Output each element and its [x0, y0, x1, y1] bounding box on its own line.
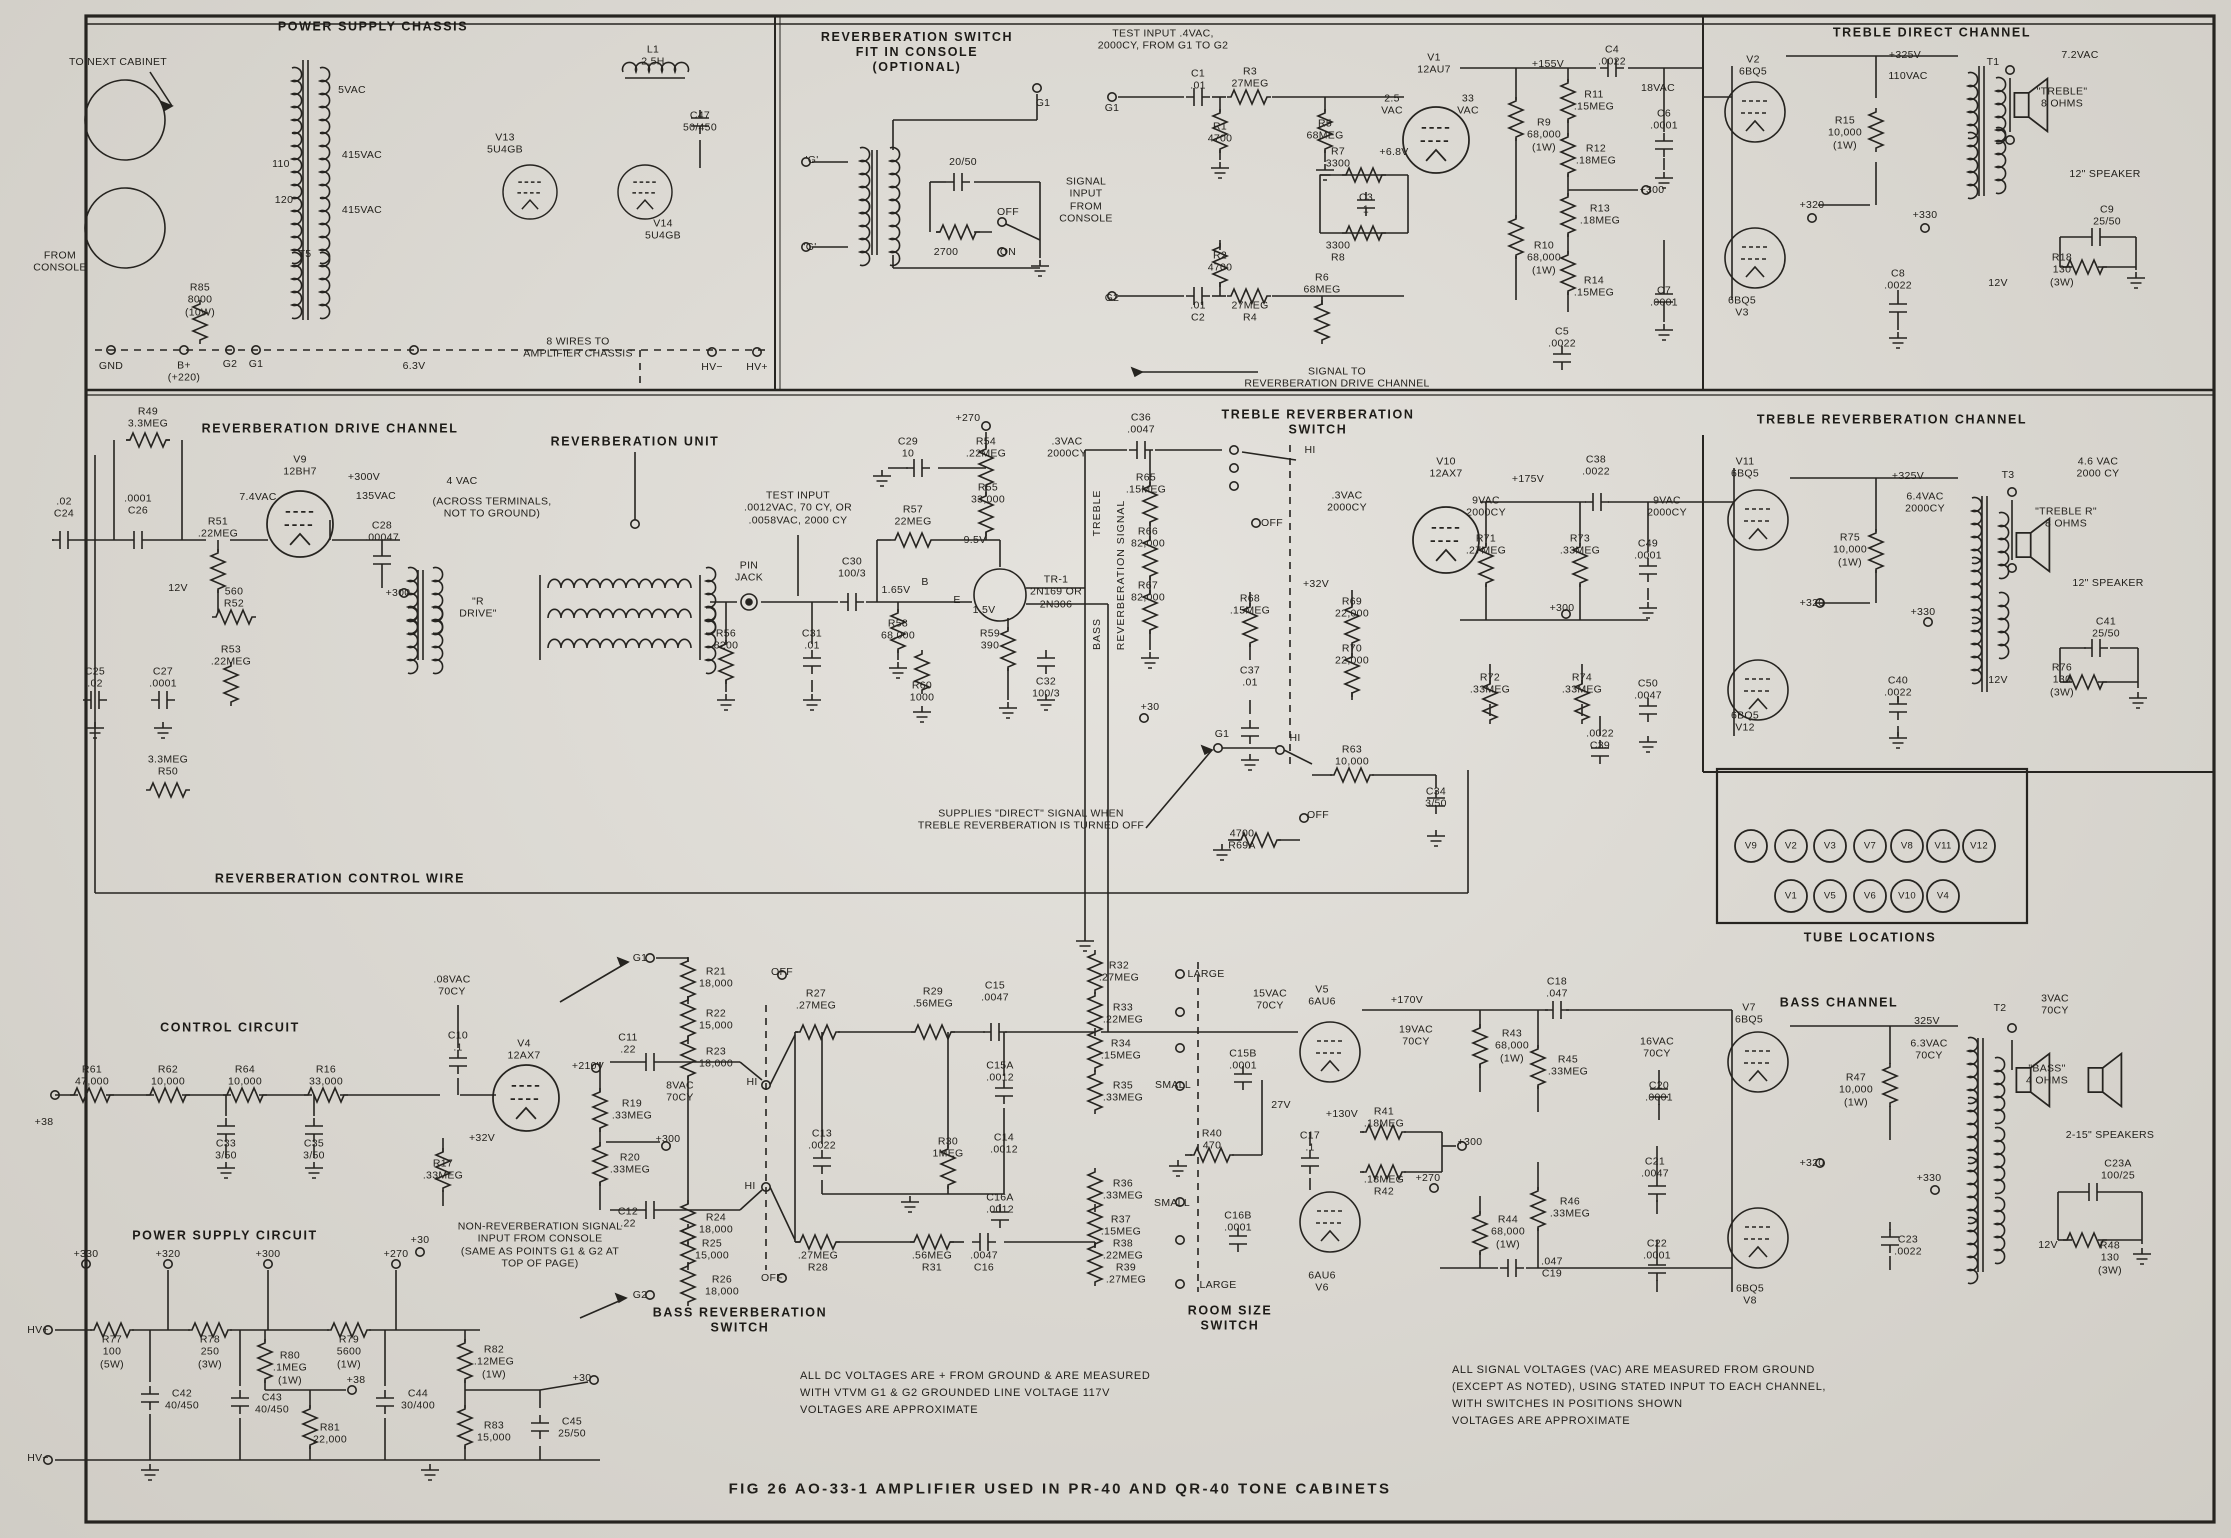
schematic-label: +300 — [256, 1248, 281, 1260]
schematic-label: C47 50/450 — [683, 110, 717, 135]
schematic-label: C3 1 — [1359, 192, 1373, 217]
schematic-label: C27 .0001 — [149, 666, 177, 691]
schematic-label: +30 — [1141, 701, 1160, 713]
schematic-label: R9 68,000 (1W) — [1527, 116, 1561, 153]
schematic-label: +300V — [348, 471, 380, 483]
schematic-label: FROM CONSOLE — [33, 250, 86, 275]
schematic-label: +155V — [1532, 58, 1564, 70]
schematic-label: R3 27MEG — [1231, 66, 1268, 91]
schematic-label: R63 10,000 — [1335, 744, 1369, 769]
schematic-label: 18VAC — [1641, 82, 1675, 94]
schematic-label: V14 5U4GB — [645, 218, 681, 243]
schematic-label: +175V — [1512, 473, 1544, 485]
schematic-label: R39 .27MEG — [1106, 1262, 1146, 1287]
schematic-label: +300 — [656, 1133, 681, 1145]
schematic-label: OFF — [761, 1272, 783, 1284]
schematic-label: B — [921, 576, 928, 588]
schematic-label: C43 40/450 — [255, 1392, 289, 1417]
schematic-label: R85 8000 (10W) — [185, 281, 215, 318]
schematic-label: R29 .56MEG — [913, 986, 953, 1011]
schematic-label: "BASS" 4 OHMS — [2026, 1063, 2068, 1088]
tube-location-label: V9 — [1745, 840, 1757, 851]
schematic-label: BASS CHANNEL — [1780, 996, 1899, 1011]
schematic-label: .01 C2 — [1190, 300, 1206, 325]
schematic-label: HI — [746, 1076, 757, 1088]
schematic-label: R60 1000 — [910, 680, 935, 705]
schematic-label: R68 .15MEG — [1230, 593, 1270, 618]
schematic-label: 8VAC 70CY — [666, 1080, 694, 1105]
schematic-label: R13 .18MEG — [1580, 203, 1620, 228]
schematic-label: R1 4700 — [1208, 121, 1233, 146]
schematic-label: C6 .0001 — [1650, 108, 1678, 133]
schematic-label: C16B .0001 — [1224, 1210, 1252, 1235]
schematic-label: LARGE — [1199, 1279, 1236, 1291]
schematic-label: R12 .18MEG — [1576, 143, 1616, 168]
schematic-label: HI — [744, 1180, 755, 1192]
schematic-label: R45 .33MEG — [1548, 1054, 1588, 1079]
schematic-label: V9 12BH7 — [283, 454, 317, 479]
schematic-label: SMALL — [1154, 1197, 1190, 1209]
schematic-label: 16VAC 70CY — [1640, 1036, 1674, 1061]
schematic-label: R77 100 (5W) — [100, 1333, 124, 1370]
schematic-label: +300 — [1550, 602, 1575, 614]
tube-location-label: V3 — [1824, 840, 1836, 851]
schematic-label: 415VAC — [342, 204, 382, 216]
schematic-label: +38 — [347, 1374, 366, 1386]
schematic-label: C13 .0022 — [808, 1128, 836, 1153]
schematic-label: C28 .00047 — [365, 520, 399, 545]
schematic-label: .0022 C39 — [1586, 728, 1614, 753]
schematic-label: 110 — [272, 158, 290, 170]
schematic-label: 110VAC — [1888, 70, 1927, 82]
schematic-label: +330 — [74, 1248, 99, 1260]
schematic-label: TO NEXT CABINET — [69, 56, 167, 68]
schematic-label: C8 .0022 — [1884, 268, 1912, 293]
schematic-label: 6.3V — [403, 360, 426, 372]
schematic-label: POWER SUPPLY CHASSIS — [278, 20, 468, 35]
schematic-label: HV+ — [746, 361, 768, 373]
schematic-label: ON — [1000, 246, 1016, 258]
schematic-label: 325V — [1914, 1015, 1940, 1027]
schematic-label: R51 .22MEG — [198, 516, 238, 541]
schematic-label: R48 130 (3W) — [2098, 1239, 2122, 1276]
schematic-label: C31 .01 — [802, 628, 822, 653]
schematic-label: R79 5600 (1W) — [337, 1333, 362, 1370]
schematic-label: G1 — [1105, 102, 1120, 114]
schematic-label: R34 .15MEG — [1101, 1038, 1141, 1063]
schematic-label: R59 390 — [980, 628, 1000, 653]
schematic-label: +320 — [1800, 597, 1825, 609]
schematic-label: +32V — [469, 1132, 495, 1144]
schematic-label: "TREBLE" 8 OHMS — [2037, 86, 2088, 111]
schematic-label: TREBLE — [1091, 490, 1103, 537]
schematic-label: 12V — [168, 582, 188, 594]
schematic-label: HV− — [701, 361, 723, 373]
tube-location-label: V5 — [1824, 890, 1836, 901]
schematic-label: 6BQ5 V3 — [1728, 295, 1756, 320]
schematic-label: 7.4VAC — [239, 491, 276, 503]
schematic-label: C5 .0022 — [1548, 326, 1576, 351]
schematic-label: C15 .0047 — [981, 980, 1009, 1005]
schematic-label: R7 3300 — [1326, 146, 1351, 171]
schematic-label: 12V — [2038, 1239, 2058, 1251]
schematic-label: G1 — [249, 358, 264, 370]
schematic-label: 33 VAC — [1457, 93, 1479, 118]
note-dc-voltages: ALL DC VOLTAGES ARE + FROM GROUND & ARE … — [800, 1368, 1150, 1419]
schematic-label: 'G' — [803, 241, 816, 253]
schematic-label: R32 .27MEG — [1099, 960, 1139, 985]
schematic-label: G1 — [1215, 728, 1230, 740]
schematic-label: R61 47,000 — [75, 1064, 109, 1089]
schematic-label: 12" SPEAKER — [2072, 577, 2143, 589]
schematic-label: 27V — [1271, 1099, 1291, 1111]
schematic-label: C45 25/50 — [558, 1416, 586, 1441]
schematic-label: C37 .01 — [1240, 665, 1260, 690]
schematic-label: 6BQ5 V8 — [1736, 1283, 1764, 1308]
schematic-label: C30 100/3 — [838, 556, 866, 581]
schematic-label: +270 — [956, 412, 981, 424]
schematic-label: 6.4VAC 2000CY — [1905, 491, 1945, 516]
schematic-label: SMALL — [1155, 1079, 1191, 1091]
schematic-label: R27 .27MEG — [796, 988, 836, 1013]
schematic-label: .3VAC 2000CY — [1047, 436, 1087, 461]
schematic-label: +270 — [1416, 1172, 1441, 1184]
schematic-label: REVERBERATION DRIVE CHANNEL — [202, 422, 459, 437]
schematic-label: 2700 — [934, 246, 959, 258]
schematic-label: R19 .33MEG — [612, 1098, 652, 1123]
labels-layer: POWER SUPPLY CHASSISTO NEXT CABINET5VAC4… — [0, 0, 2231, 1538]
schematic-label: R37 .15MEG — [1101, 1214, 1141, 1239]
schematic-label: C49 .0001 — [1634, 538, 1662, 563]
schematic-label: POWER SUPPLY CIRCUIT — [132, 1229, 318, 1244]
schematic-label: HV+ — [27, 1324, 49, 1336]
schematic-label: "R DRIVE" — [459, 596, 497, 621]
schematic-label: T1 — [1987, 56, 2000, 68]
schematic-label: C16A .0012 — [986, 1192, 1014, 1217]
schematic-label: BASS REVERBERATION SWITCH — [653, 1305, 827, 1335]
schematic-label: +300 — [386, 587, 411, 599]
schematic-label: REVERBERATION CONTROL WIRE — [215, 872, 465, 887]
schematic-label: C21 .0047 — [1641, 1156, 1669, 1181]
schematic-label: .3VAC 2000CY — [1327, 490, 1367, 515]
schematic-label: R22 15,000 — [699, 1008, 733, 1033]
schematic-label: 12V — [1988, 674, 2008, 686]
schematic-label: C23A 100/25 — [2101, 1158, 2135, 1183]
schematic-label: 415VAC — [342, 149, 382, 161]
schematic-label: REVERBERATION SIGNAL — [1115, 500, 1127, 651]
schematic-label: R54 .22MEG — [966, 436, 1006, 461]
schematic-label: R18 130 (3W) — [2050, 251, 2074, 288]
schematic-label: R62 10,000 — [151, 1064, 185, 1089]
schematic-label: R44 68,000 (1W) — [1491, 1213, 1525, 1250]
schematic-label: C22 .0001 — [1643, 1238, 1671, 1263]
schematic-label: +330 — [1913, 209, 1938, 221]
schematic-label: R82 .12MEG (1W) — [474, 1343, 514, 1380]
tube-location-label: V4 — [1937, 890, 1949, 901]
schematic-label: HV− — [27, 1452, 49, 1464]
schematic-label: B+ (+220) — [168, 360, 200, 385]
schematic-label: 3VAC 70CY — [2041, 993, 2069, 1018]
schematic-label: SIGNAL TO REVERBERATION DRIVE CHANNEL — [1244, 366, 1429, 391]
schematic-label: C42 40/450 — [165, 1388, 199, 1413]
schematic-label: R6 68MEG — [1303, 272, 1340, 297]
schematic-label: T3 — [2002, 469, 2015, 481]
schematic-label: C36 .0047 — [1127, 412, 1155, 437]
schematic-label: R74 .33MEG — [1562, 672, 1602, 697]
schematic-label: C25 .02 — [85, 666, 105, 691]
schematic-label: 2.5 VAC — [1381, 93, 1403, 118]
schematic-label: C15B .0001 — [1229, 1048, 1257, 1073]
schematic-label: +330 — [1911, 606, 1936, 618]
schematic-label: R21 18,000 — [699, 966, 733, 991]
schematic-label: R76 130 (3W) — [2050, 661, 2074, 698]
schematic-label: R57 22MEG — [894, 504, 931, 529]
schematic-label: TREBLE DIRECT CHANNEL — [1833, 26, 2031, 41]
schematic-label: C4 .0022 — [1598, 44, 1626, 69]
schematic-label: 135VAC — [356, 490, 396, 502]
schematic-label: TREBLE REVERBERATION SWITCH — [1222, 407, 1415, 437]
schematic-label: R83 15,000 — [477, 1420, 511, 1445]
schematic-label: C20 .0001 — [1645, 1080, 1673, 1105]
schematic-label: SUPPLIES "DIRECT" SIGNAL WHEN TREBLE REV… — [918, 808, 1144, 833]
schematic-label: .0047 C16 — [970, 1250, 998, 1275]
tube-location-label: V7 — [1864, 840, 1876, 851]
schematic-label: 3.3MEG R50 — [148, 754, 188, 779]
schematic-label: ROOM SIZE SWITCH — [1188, 1303, 1273, 1333]
schematic-label: R20 .33MEG — [610, 1152, 650, 1177]
schematic-label: +6.8V — [1379, 146, 1408, 158]
schematic-label: R75 10,000 (1W) — [1833, 531, 1867, 568]
schematic-label: +30 — [411, 1234, 430, 1246]
schematic-label: .27MEG R28 — [798, 1250, 838, 1275]
schematic-label: G1 — [633, 952, 648, 964]
tube-location-label: V11 — [1934, 840, 1951, 851]
schematic-label: 6.3VAC 70CY — [1910, 1038, 1947, 1063]
schematic-label: V10 12AX7 — [1429, 456, 1462, 481]
schematic-label: LARGE — [1187, 968, 1224, 980]
tube-location-label: V1 — [1785, 890, 1797, 901]
schematic-label: +325V — [1892, 470, 1924, 482]
schematic-label: 12V — [1988, 277, 2008, 289]
schematic-label: R58 68,000 — [881, 618, 915, 643]
schematic-label: .56MEG R31 — [912, 1250, 952, 1275]
schematic-label: 15VAC 70CY — [1253, 988, 1287, 1013]
schematic-label: R40 470 — [1202, 1128, 1222, 1153]
schematic-label: TEST INPUT .4VAC, 2000CY, FROM G1 TO G2 — [1098, 28, 1229, 53]
schematic-label: +38 — [35, 1116, 54, 1128]
schematic-label: 19VAC 70CY — [1399, 1024, 1433, 1049]
schematic-label: R2 4700 — [1208, 250, 1233, 275]
schematic-label: R33 .22MEG — [1103, 1002, 1143, 1027]
schematic-label: +130V — [1326, 1108, 1358, 1120]
schematic-label: OFF — [771, 966, 793, 978]
schematic-label: C40 .0022 — [1884, 675, 1912, 700]
schematic-label: 6BQ5 V12 — [1731, 710, 1759, 735]
schematic-label: 9VAC 2000CY — [1466, 495, 1506, 520]
schematic-label: OFF — [1261, 517, 1283, 529]
schematic-label: OFF — [997, 206, 1019, 218]
schematic-label: R65 .15MEG — [1126, 472, 1166, 497]
schematic-label: 8 WIRES TO AMPLIFIER CHASSIS — [523, 336, 633, 361]
tube-locations-title: TUBE LOCATIONS — [1804, 931, 1937, 946]
schematic-label: R64 10,000 — [228, 1064, 262, 1089]
schematic-label: +170V — [1391, 994, 1423, 1006]
schematic-label: G2 — [1105, 292, 1120, 304]
schematic-label: 2-15" SPEAKERS — [2066, 1129, 2154, 1141]
schematic-label: +300 — [1458, 1136, 1483, 1148]
schematic-label: C12 .22 — [618, 1206, 638, 1231]
schematic-label: TR-1 2N169 OR 2N306 — [1030, 573, 1082, 610]
schematic-label: R55 33,000 — [971, 482, 1005, 507]
schematic-label: +325V — [1889, 49, 1921, 61]
schematic-label: T2 — [1994, 1002, 2007, 1014]
schematic-label: L1 2.5H — [641, 44, 664, 69]
schematic-label: R46 .33MEG — [1550, 1196, 1590, 1221]
schematic-label: V11 6BQ5 — [1731, 456, 1759, 481]
schematic-label: R14 .15MEG — [1574, 275, 1614, 300]
schematic-label: R72 .33MEG — [1470, 672, 1510, 697]
schematic-label: C32 100/3 — [1032, 676, 1060, 701]
schematic-label: REVERBERATION UNIT — [551, 435, 720, 450]
schematic-label: R67 82,000 — [1131, 580, 1165, 605]
schematic-label: C15A .0012 — [986, 1060, 1014, 1085]
schematic-label: .0001 C26 — [124, 493, 152, 518]
schematic-label: R66 82,000 — [1131, 526, 1165, 551]
schematic-label: 'G' — [805, 154, 818, 166]
schematic-label: 1.65V — [882, 584, 911, 596]
schematic-label: R53 .22MEG — [211, 644, 251, 669]
schematic-label: 20/50 — [949, 156, 977, 168]
schematic-label: V13 5U4GB — [487, 132, 523, 157]
schematic-label: HI — [1304, 444, 1315, 456]
tube-location-label: V10 — [1898, 890, 1916, 901]
schematic-label: HI — [1289, 732, 1300, 744]
schematic-label: V2 6BQ5 — [1739, 54, 1767, 79]
schematic-label: 9VAC 2000CY — [1647, 495, 1687, 520]
schematic-label: PIN JACK — [735, 560, 763, 585]
schematic-label: C14 .0012 — [990, 1132, 1018, 1157]
schematic-label: +320 — [156, 1248, 181, 1260]
schematic-label: G1 — [1036, 97, 1051, 109]
schematic-label: 5VAC — [338, 84, 366, 96]
schematic-label: 9.5V — [964, 534, 987, 546]
schematic-label: C10 .1 — [448, 1030, 468, 1055]
schematic-label: BASS — [1091, 618, 1103, 650]
schematic-label: 4 VAC — [446, 475, 477, 487]
schematic-label: C34 3/50 — [1425, 786, 1447, 811]
schematic-label: C38 .0022 — [1582, 454, 1610, 479]
schematic-label: R73 .33MEG — [1560, 533, 1600, 558]
tube-location-label: V6 — [1864, 890, 1876, 901]
schematic-label: C11 .22 — [618, 1032, 637, 1057]
schematic-label: R10 68,000 (1W) — [1527, 239, 1561, 276]
schematic-label: CONTROL CIRCUIT — [160, 1021, 300, 1036]
schematic-label: +210V — [572, 1060, 604, 1072]
schematic-label: 7.2VAC — [2061, 49, 2098, 61]
schematic-label: 4.6 VAC 2000 CY — [2077, 456, 2120, 481]
schematic-label: 120 — [275, 194, 293, 206]
schematic-label: (ACROSS TERMINALS, NOT TO GROUND) — [433, 496, 552, 521]
schematic-label: R5 68MEG — [1306, 118, 1343, 143]
schematic-label: C17 .1 — [1300, 1130, 1320, 1155]
schematic-label: G2 — [223, 358, 238, 370]
schematic-label: R16 33,000 — [309, 1064, 343, 1089]
schematic-label: .18MEG R42 — [1364, 1174, 1404, 1199]
schematic-label: E — [953, 594, 960, 606]
schematic-label: TEST INPUT .0012VAC, 70 CY, OR .0058VAC,… — [744, 489, 852, 526]
schematic-label: TREBLE REVERBERATION CHANNEL — [1757, 413, 2027, 428]
schematic-page: POWER SUPPLY CHASSISTO NEXT CABINET5VAC4… — [0, 0, 2231, 1538]
schematic-label: 3300 R8 — [1326, 240, 1351, 265]
schematic-label: C9 25/50 — [2093, 204, 2121, 229]
schematic-label: C1 .01 — [1190, 68, 1206, 93]
tube-location-label: V8 — [1901, 840, 1913, 851]
schematic-label: C35 3/50 — [303, 1138, 325, 1163]
schematic-label: .08VAC 70CY — [433, 974, 470, 999]
schematic-label: G2 — [633, 1289, 648, 1301]
schematic-label: "TREBLE R" 8 OHMS — [2035, 506, 2097, 531]
schematic-label: C41 25/50 — [2092, 616, 2120, 641]
schematic-label: +30 — [573, 1372, 592, 1384]
schematic-label: 6AU6 V6 — [1308, 1270, 1335, 1295]
schematic-label: +32V — [1303, 578, 1329, 590]
schematic-label: V1 12AU7 — [1417, 52, 1451, 77]
schematic-label: R78 250 (3W) — [198, 1333, 222, 1370]
tube-location-label: V2 — [1785, 840, 1797, 851]
schematic-label: R56 8200 — [714, 628, 739, 653]
schematic-label: .047 C19 — [1541, 1256, 1563, 1281]
schematic-label: R17 .33MEG — [423, 1158, 463, 1183]
schematic-label: R25 15,000 — [695, 1238, 729, 1263]
schematic-label: R69 22,000 — [1335, 596, 1369, 621]
schematic-label: R11 .15MEG — [1574, 89, 1614, 114]
schematic-label: C18 .047 — [1546, 976, 1568, 1001]
schematic-label: C23 .0022 — [1894, 1234, 1922, 1259]
schematic-label: .02 C24 — [54, 496, 74, 521]
schematic-label: 27MEG R4 — [1231, 300, 1268, 325]
schematic-label: 12" SPEAKER — [2069, 168, 2140, 180]
schematic-label: +330 — [1917, 1172, 1942, 1184]
schematic-label: +320 — [1800, 1157, 1825, 1169]
figure-caption: FIG 26 AO-33-1 AMPLIFIER USED IN PR-40 A… — [729, 1481, 1392, 1498]
schematic-label: +320 — [1800, 199, 1825, 211]
schematic-label: R38 .22MEG — [1103, 1238, 1143, 1263]
schematic-label: R24 18,000 — [699, 1212, 733, 1237]
schematic-label: NON-REVERBERATION SIGNAL INPUT FROM CONS… — [458, 1220, 623, 1270]
schematic-label: R23 18,000 — [699, 1046, 733, 1071]
schematic-label: REVERBERATION SWITCH FIT IN CONSOLE (OPT… — [821, 30, 1013, 74]
schematic-label: R15 10,000 (1W) — [1828, 114, 1862, 151]
schematic-label: R47 10,000 (1W) — [1839, 1071, 1873, 1108]
schematic-label: R81 22,000 — [313, 1422, 347, 1447]
schematic-label: C44 30/400 — [401, 1388, 435, 1413]
schematic-label: 4700 R69A — [1228, 828, 1255, 853]
tube-location-label: V12 — [1970, 840, 1988, 851]
schematic-label: R26 18,000 — [705, 1274, 739, 1299]
note-signal-voltages: ALL SIGNAL VOLTAGES (VAC) ARE MEASURED F… — [1452, 1362, 1826, 1430]
schematic-label: C7 .0001 — [1650, 285, 1678, 310]
schematic-label: R30 1MEG — [933, 1136, 964, 1161]
schematic-label: R80 .1MEG (1W) — [273, 1349, 307, 1386]
schematic-label: OFF — [1307, 809, 1329, 821]
schematic-label: GND — [99, 360, 123, 372]
schematic-label: R71 .27MEG — [1466, 533, 1506, 558]
schematic-label: C50 .0047 — [1634, 678, 1662, 703]
schematic-label: 1.5V — [973, 604, 996, 616]
schematic-label: C29 10 — [898, 436, 918, 461]
schematic-label: R41 .18MEG — [1364, 1106, 1404, 1131]
schematic-label: SIGNAL INPUT FROM CONSOLE — [1059, 175, 1112, 225]
